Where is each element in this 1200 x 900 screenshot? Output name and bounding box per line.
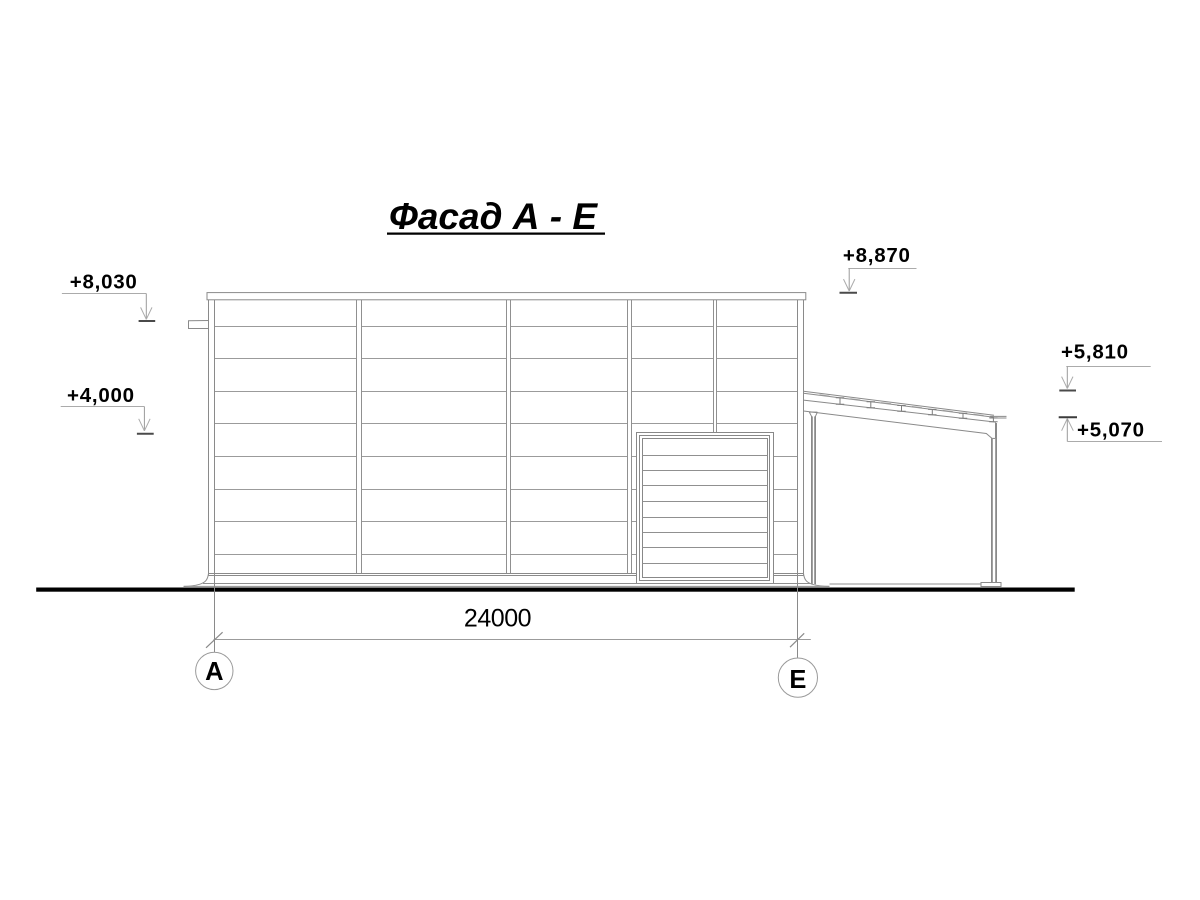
svg-text:+8,030: +8,030 (70, 270, 138, 293)
svg-text:+4,000: +4,000 (67, 384, 135, 407)
svg-text:Фасад А - Е: Фасад А - Е (389, 196, 598, 237)
svg-text:А: А (205, 658, 223, 686)
svg-text:+8,870: +8,870 (843, 244, 911, 267)
svg-text:24000: 24000 (464, 604, 531, 632)
svg-text:Е: Е (789, 666, 806, 694)
svg-text:+5,070: +5,070 (1077, 418, 1145, 441)
svg-text:+5,810: +5,810 (1061, 340, 1129, 363)
